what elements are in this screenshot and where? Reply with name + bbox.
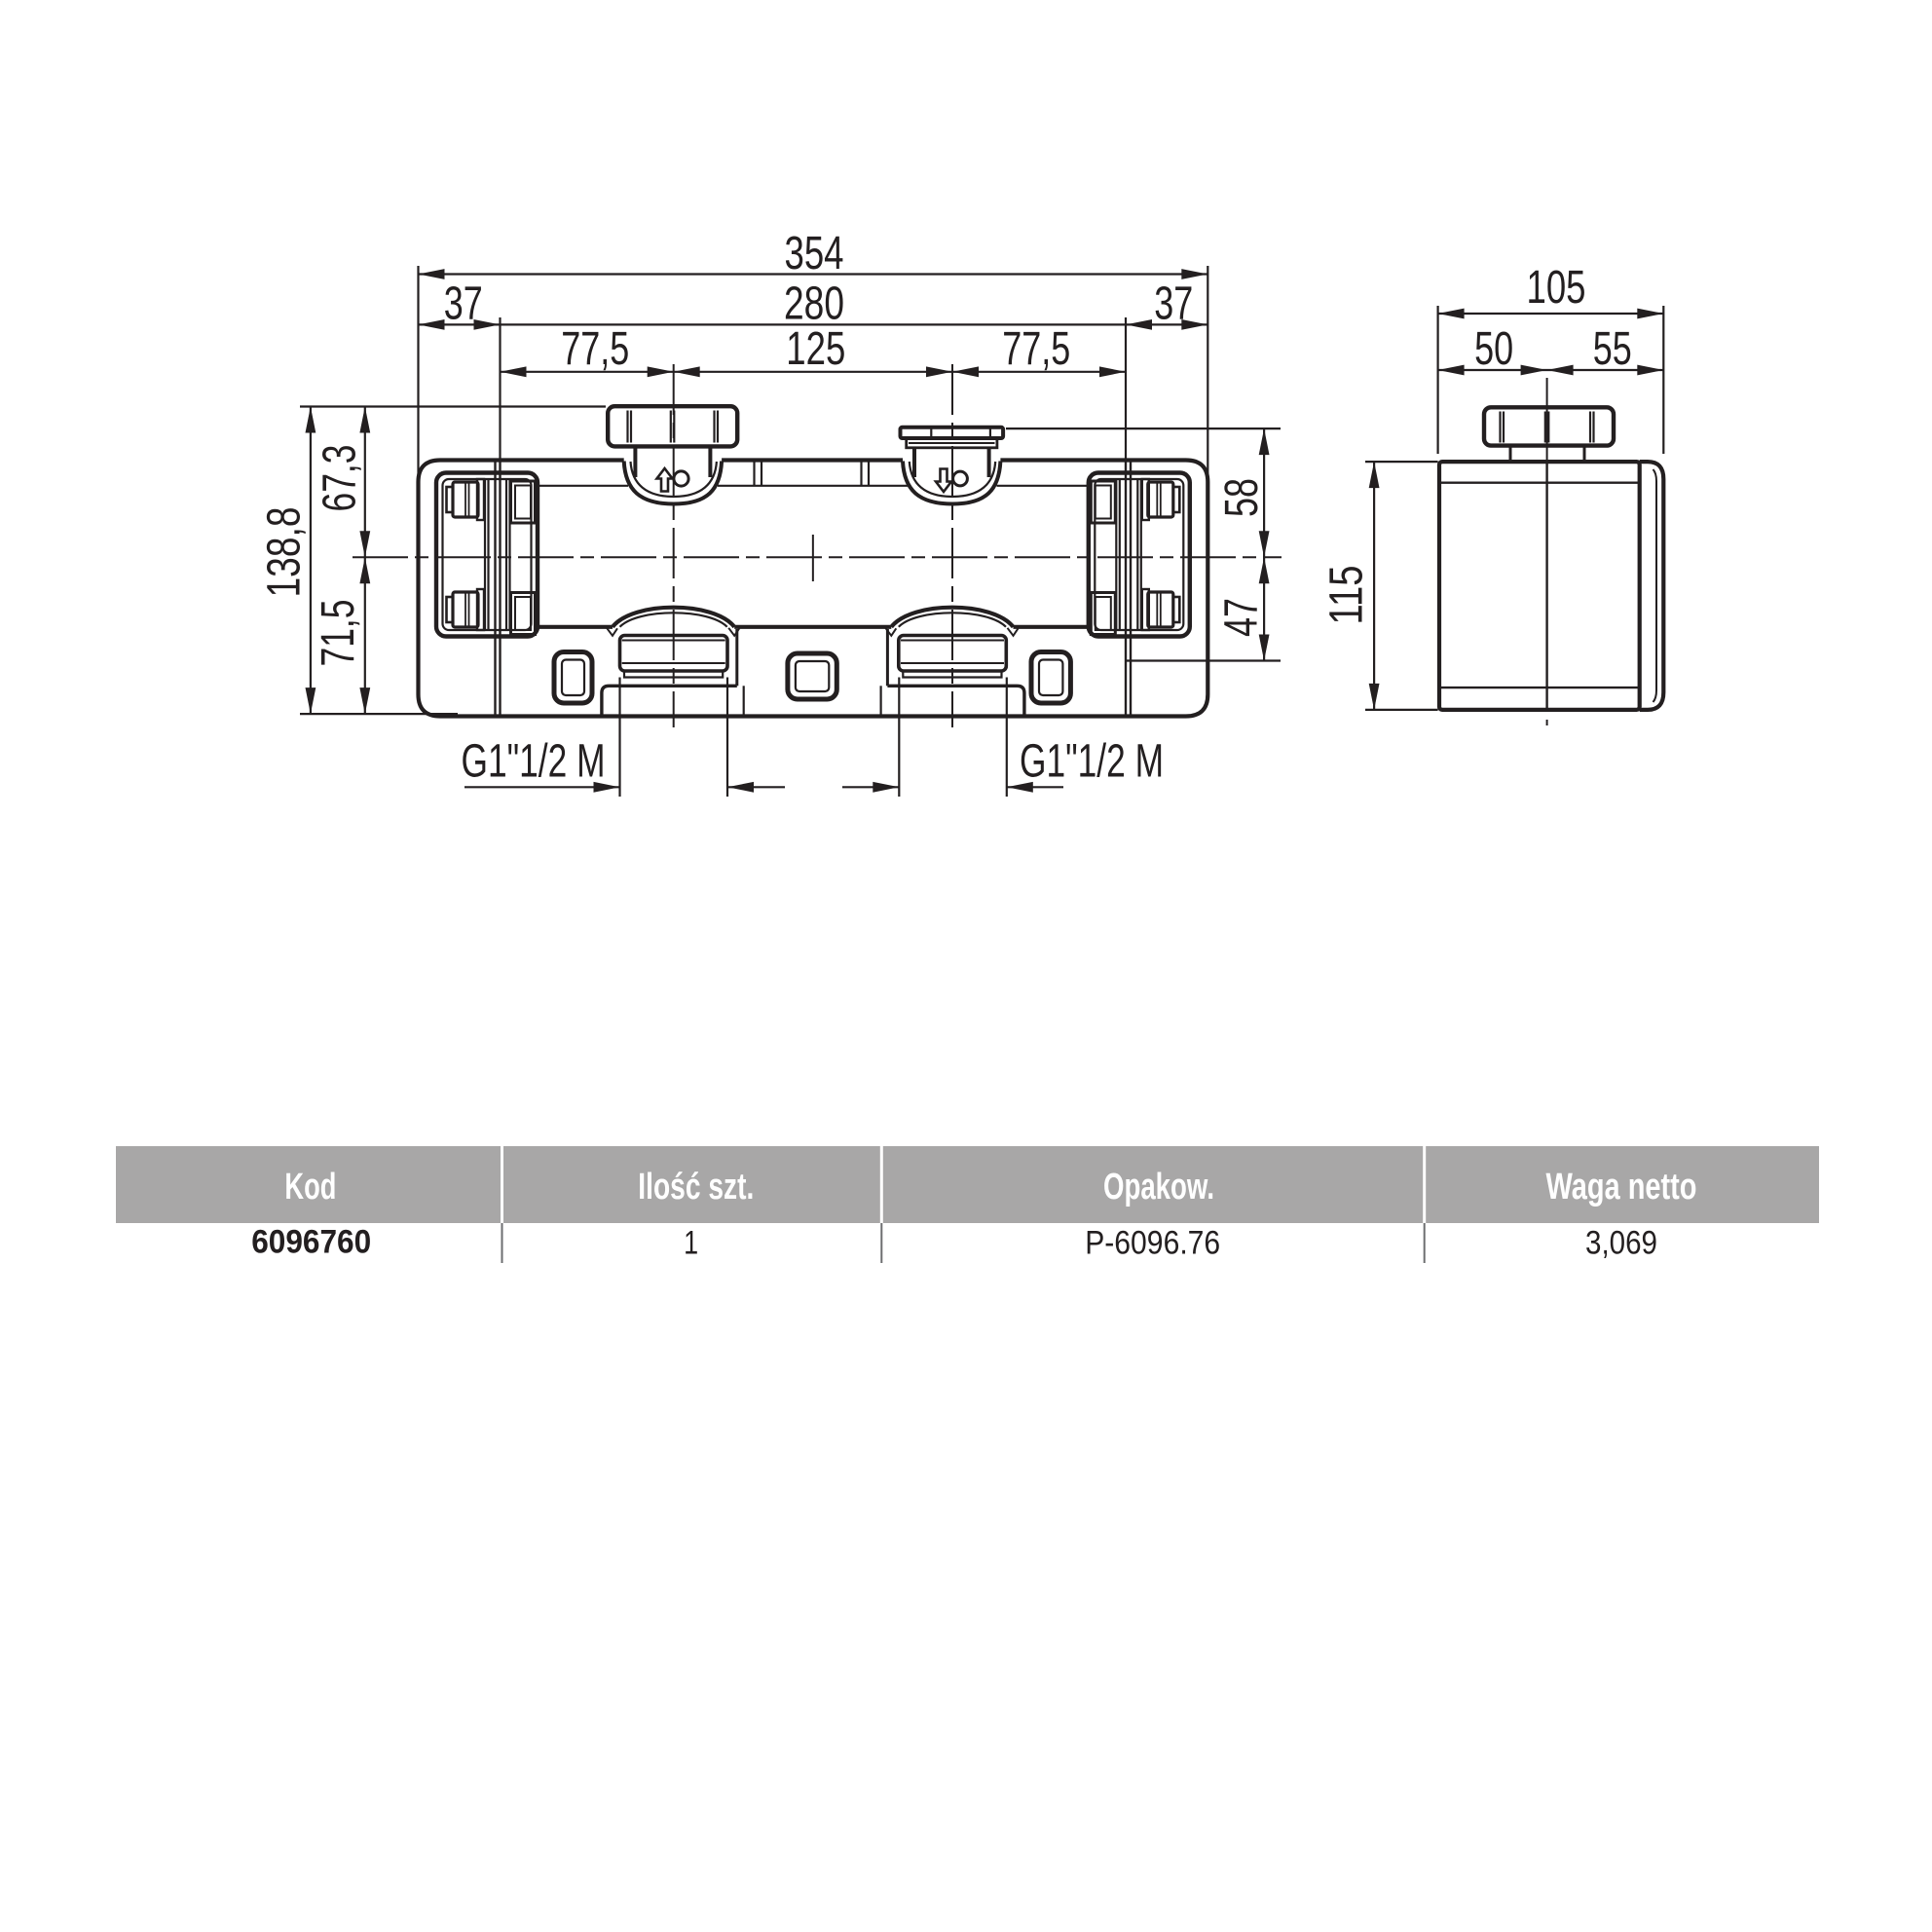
svg-text:77,5: 77,5	[1002, 323, 1070, 375]
svg-text:1: 1	[684, 1225, 698, 1262]
svg-text:55: 55	[1593, 323, 1632, 375]
svg-text:Ilość szt.: Ilość szt.	[638, 1167, 754, 1207]
svg-text:71,5: 71,5	[313, 600, 364, 667]
svg-text:77,5: 77,5	[561, 323, 629, 375]
svg-text:Opakow.: Opakow.	[1103, 1167, 1214, 1207]
svg-text:Kod: Kod	[284, 1167, 336, 1207]
svg-text:67,3: 67,3	[315, 445, 366, 512]
svg-text:6096760: 6096760	[251, 1224, 371, 1261]
svg-text:3,069: 3,069	[1585, 1225, 1657, 1262]
svg-text:G1"1/2 M: G1"1/2 M	[462, 736, 606, 788]
svg-text:280: 280	[784, 279, 844, 330]
svg-text:105: 105	[1527, 262, 1586, 314]
svg-text:Waga netto: Waga netto	[1546, 1167, 1697, 1207]
svg-text:50: 50	[1474, 323, 1513, 375]
svg-text:354: 354	[785, 228, 844, 279]
svg-text:138,8: 138,8	[259, 507, 311, 598]
svg-text:P-6096.76: P-6096.76	[1085, 1225, 1220, 1262]
svg-text:G1"1/2 M: G1"1/2 M	[1020, 736, 1164, 788]
svg-text:47: 47	[1216, 598, 1268, 637]
svg-text:115: 115	[1321, 566, 1373, 625]
svg-text:125: 125	[786, 323, 845, 375]
svg-text:37: 37	[444, 279, 483, 330]
svg-text:37: 37	[1154, 279, 1193, 330]
svg-text:58: 58	[1216, 478, 1268, 517]
